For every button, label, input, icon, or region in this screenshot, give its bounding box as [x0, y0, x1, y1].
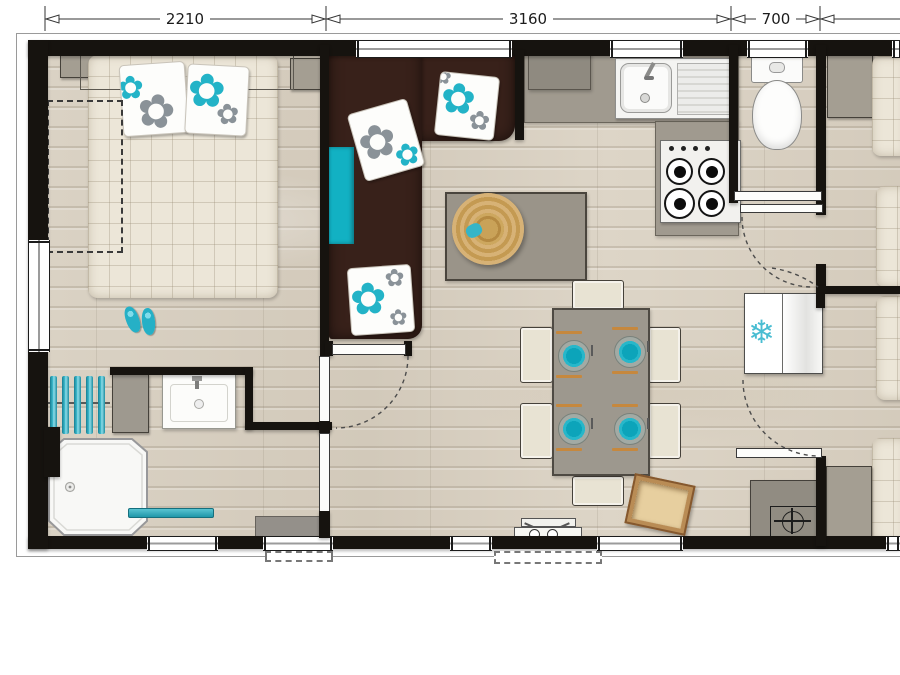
dim-label-wc: 700 [762, 10, 791, 28]
wc-door-swing [742, 217, 812, 287]
dim-label-bedroom: 2210 [166, 10, 204, 28]
right-room-door-swing [743, 380, 817, 456]
upper-right-door-swing [772, 268, 818, 287]
annotation-overlay: 2210 3160 700 [0, 0, 900, 675]
dim-label-living: 3160 [509, 10, 547, 28]
floor-plan-canvas: ✿ ✿ ✿ ✿ ✿ ✿ ✿ ✿ ✿ ✿ ✿ ✿ [0, 0, 900, 675]
bedroom-door-swing [336, 356, 408, 428]
